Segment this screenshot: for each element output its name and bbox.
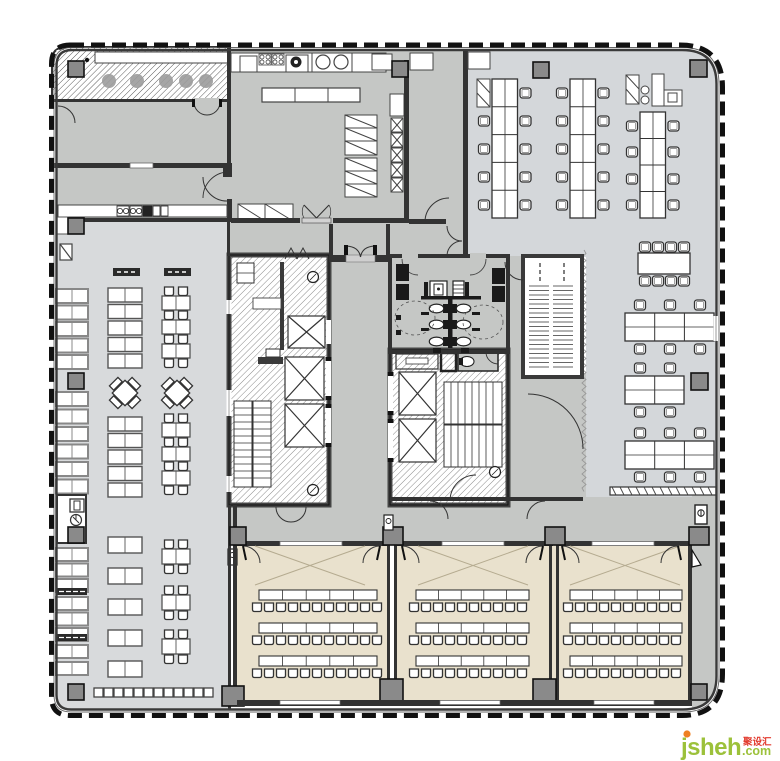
svg-text:聚设汇: 聚设汇 — [742, 736, 772, 748]
svg-text:jsheh: jsheh — [680, 734, 741, 761]
